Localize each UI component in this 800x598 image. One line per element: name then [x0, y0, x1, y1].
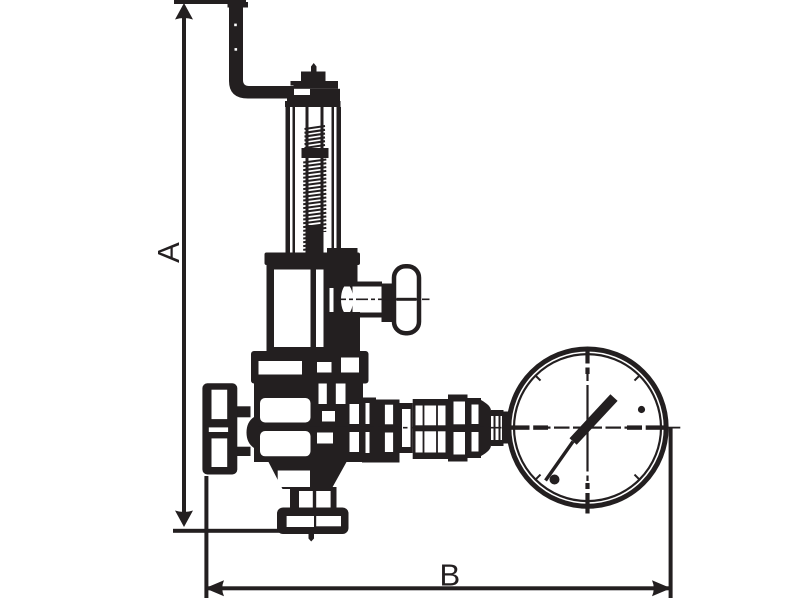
svg-text:B: B [440, 557, 461, 592]
svg-text:A: A [151, 242, 186, 263]
